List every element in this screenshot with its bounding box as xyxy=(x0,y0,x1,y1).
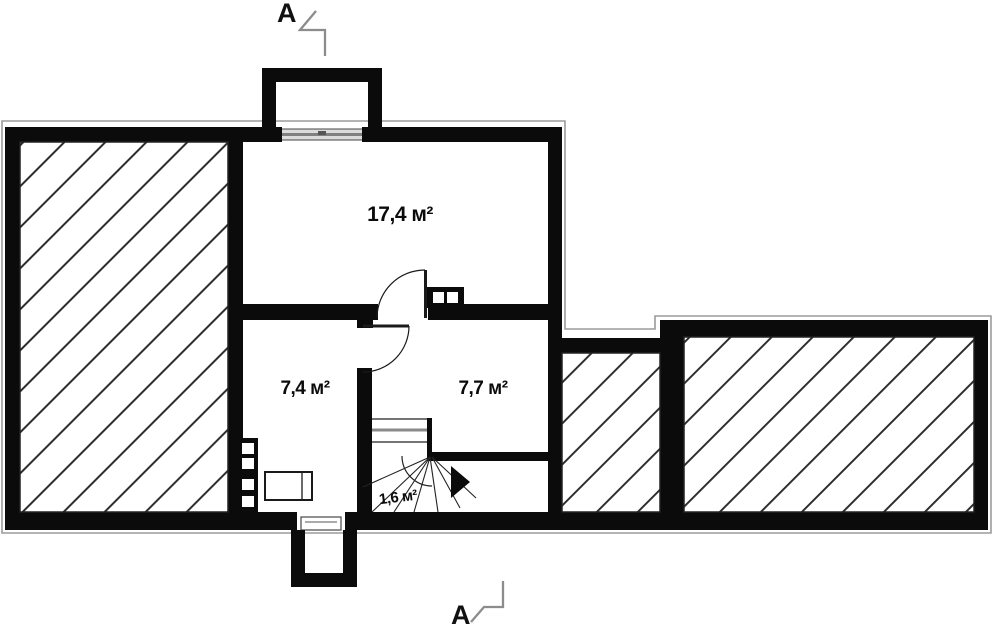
wall-right-main xyxy=(548,127,562,512)
door-room-large xyxy=(377,270,426,318)
room-area-label-7-4: 7,4 м² xyxy=(250,378,360,400)
section-line-top xyxy=(300,11,325,56)
hatched-area-left xyxy=(20,142,228,512)
wall-wing-right xyxy=(974,320,988,530)
room-area-label-7-7: 7,7 м² xyxy=(428,378,538,400)
wall-wing-large-top xyxy=(660,320,988,337)
hatched-area-wing-large xyxy=(684,337,974,512)
section-line-bottom xyxy=(471,581,503,622)
wall-left-main xyxy=(5,127,20,530)
room-area-label-17-4: 17,4 м² xyxy=(340,203,460,227)
section-marker-top: A xyxy=(277,0,297,27)
furniture-cabinet xyxy=(265,472,312,500)
porch-bottom xyxy=(291,530,357,587)
wall-wing-divider xyxy=(660,320,684,512)
window-top xyxy=(274,127,370,142)
wall-stair-bottom xyxy=(427,452,548,461)
wall-mid-left-segment xyxy=(243,304,378,320)
entrance-bottom xyxy=(297,512,345,530)
door-hall xyxy=(363,326,409,372)
chimney-block xyxy=(427,287,464,308)
floor-plan: A A 17,4 м² 7,4 м² 7,7 м² 1,6 м² xyxy=(0,0,1000,635)
wall-bottom-main xyxy=(5,512,988,530)
porch-top xyxy=(262,68,382,128)
stair-direction-arrow xyxy=(451,466,470,498)
floor-plan-drawing xyxy=(0,0,1000,635)
ladder-symbol xyxy=(238,438,258,512)
hatched-area-wing-small xyxy=(562,353,660,512)
section-marker-bottom: A xyxy=(451,602,471,629)
